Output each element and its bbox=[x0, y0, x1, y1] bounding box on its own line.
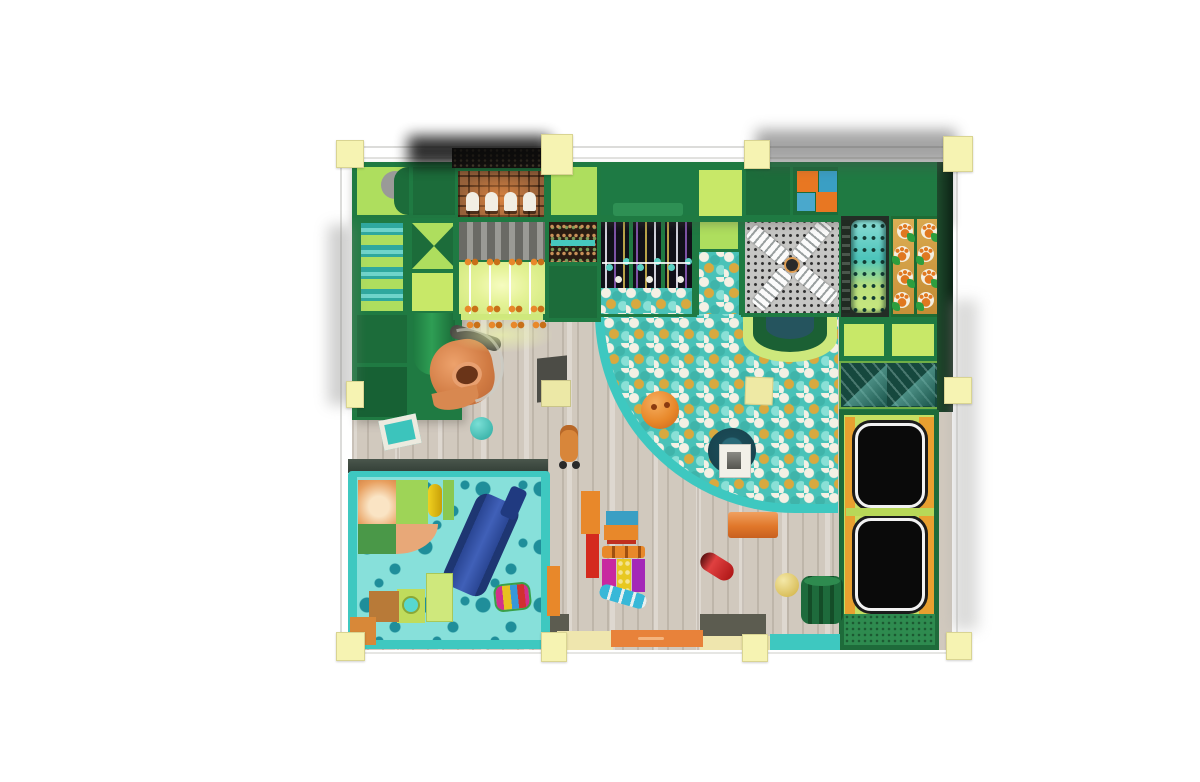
dark-wedge bbox=[394, 167, 409, 215]
soft-block-purple bbox=[632, 559, 645, 592]
bell-pair bbox=[530, 258, 545, 266]
leaf-accent bbox=[892, 256, 900, 265]
bell-pair bbox=[464, 258, 479, 266]
perforated-cylinder bbox=[851, 220, 886, 313]
left-cell-panel bbox=[412, 273, 456, 311]
hanging-string bbox=[685, 220, 687, 288]
floor-bells bbox=[466, 321, 552, 330]
hanging-ball bbox=[646, 276, 653, 283]
structure-column bbox=[742, 634, 768, 662]
harp-curtain bbox=[459, 222, 545, 260]
shadow-smudge bbox=[952, 300, 978, 630]
midcol-panel bbox=[549, 266, 597, 318]
harp-bells-bottom bbox=[464, 305, 544, 313]
hanging-string bbox=[636, 220, 638, 288]
slide-dome-core bbox=[766, 315, 814, 339]
hanging-strings bbox=[600, 220, 692, 290]
toddler-outer-pad bbox=[547, 566, 560, 616]
structure-column bbox=[336, 140, 364, 168]
shadow-smudge bbox=[408, 136, 550, 166]
bell-pair bbox=[508, 258, 523, 266]
harp-bells-top bbox=[464, 258, 544, 266]
green-stool-top bbox=[804, 576, 840, 586]
soft-block-bar-row bbox=[602, 546, 645, 558]
cylinder-ladder bbox=[842, 220, 850, 313]
pit-white-box-art bbox=[727, 452, 741, 469]
right-edge-wall bbox=[937, 162, 953, 412]
brick-arch bbox=[466, 192, 479, 211]
left-cell-panel bbox=[357, 315, 407, 363]
scooter-wheel bbox=[559, 461, 567, 469]
soft-block-orange bbox=[581, 491, 600, 534]
bell-pair bbox=[510, 321, 525, 329]
bell-pair bbox=[508, 305, 523, 313]
trampoline-pad-left bbox=[845, 417, 855, 641]
hanging-string bbox=[667, 220, 669, 288]
hanging-panel-bar bbox=[602, 262, 690, 264]
bell-pair bbox=[486, 258, 501, 266]
storage-box-top bbox=[541, 380, 571, 407]
trampoline-bed bbox=[855, 423, 925, 508]
top-cell-panel bbox=[699, 170, 742, 216]
bell-pair bbox=[488, 321, 503, 329]
pit-orange-ball bbox=[641, 391, 679, 429]
pit-orange-ball-dot bbox=[664, 402, 670, 408]
roller-ramp bbox=[357, 223, 407, 311]
hanging-ball bbox=[637, 264, 644, 271]
toddler-green-column bbox=[443, 480, 454, 520]
leaf-accent bbox=[907, 279, 915, 288]
bell-pair bbox=[532, 321, 547, 329]
bead-shelf-teal-bar bbox=[551, 240, 595, 246]
teal-ball bbox=[470, 417, 493, 440]
structure-column bbox=[944, 377, 972, 404]
brick-arch bbox=[523, 192, 536, 211]
structure-column bbox=[946, 632, 972, 660]
toddler-green-wedge bbox=[358, 524, 396, 554]
color-block-lightblue bbox=[797, 193, 815, 211]
structure-column bbox=[541, 134, 573, 175]
brick-arches bbox=[466, 192, 536, 214]
playground-floorplan bbox=[0, 0, 1200, 782]
hanging-ball bbox=[668, 264, 675, 271]
toddler-lime-box bbox=[426, 573, 453, 622]
hanging-string bbox=[605, 220, 607, 288]
soft-block-red-edge bbox=[607, 540, 636, 544]
structure-column bbox=[541, 632, 567, 662]
hanging-ball bbox=[615, 276, 622, 283]
trampoline-bed bbox=[855, 518, 925, 611]
top-cell-panel bbox=[413, 167, 457, 215]
grid-line-bottom bbox=[338, 652, 962, 654]
soft-block-red bbox=[586, 534, 599, 578]
leaf-accent bbox=[916, 302, 924, 311]
striped-drum bbox=[493, 581, 533, 613]
ride-on-scooter bbox=[560, 430, 578, 462]
trampoline-bottom-step bbox=[844, 614, 935, 645]
entrance-mat-stripe bbox=[638, 637, 664, 640]
structure-column bbox=[744, 140, 770, 169]
windmill-hub bbox=[786, 259, 798, 271]
hanging-ball bbox=[677, 276, 684, 283]
hanging-string bbox=[654, 220, 656, 288]
toddler-yellow-cylinder bbox=[428, 484, 442, 517]
right-cell-panel bbox=[841, 321, 887, 359]
orange-bench bbox=[728, 512, 778, 538]
ball-strip-under-panels bbox=[601, 288, 692, 314]
color-block-orange bbox=[797, 171, 818, 192]
bell-pair bbox=[530, 305, 545, 313]
hanging-string bbox=[623, 220, 625, 288]
green-bar-cell bbox=[697, 218, 741, 252]
leaf-accent bbox=[916, 256, 924, 265]
brick-arch bbox=[504, 192, 517, 211]
paw-strip-1 bbox=[893, 219, 914, 314]
top-cell-panel bbox=[746, 167, 790, 215]
brick-arch bbox=[485, 192, 498, 211]
leaf-accent bbox=[907, 233, 915, 242]
trampoline-mid-band bbox=[846, 508, 934, 516]
bell-pair bbox=[486, 305, 501, 313]
soft-block-blue bbox=[606, 511, 638, 525]
color-block-blue bbox=[819, 171, 837, 192]
leaf-accent bbox=[892, 302, 900, 311]
top-cell-lip bbox=[613, 203, 683, 216]
structure-column bbox=[943, 136, 973, 172]
toddler-hole bbox=[402, 596, 420, 614]
hanging-ball bbox=[606, 264, 613, 271]
bottom-teal-wall bbox=[770, 634, 840, 650]
right-cell-panel bbox=[889, 321, 937, 359]
scooter-wheel bbox=[572, 461, 580, 469]
left-cell-panel bbox=[357, 367, 407, 417]
yellow-ball bbox=[775, 573, 799, 597]
pit-orange-ball-dot bbox=[651, 404, 657, 410]
structure-column bbox=[346, 381, 364, 408]
paw-strip-2 bbox=[917, 219, 938, 314]
bell-pair bbox=[466, 321, 481, 329]
soft-block-orange bbox=[604, 525, 638, 540]
ball-strip-beside-panels bbox=[699, 252, 739, 314]
pit-yellow-platform bbox=[745, 377, 774, 406]
bell-pair bbox=[464, 305, 479, 313]
shadow-smudge bbox=[756, 130, 956, 166]
color-block-orange bbox=[816, 192, 837, 212]
toddler-green-block bbox=[396, 480, 428, 524]
toddler-block-glow bbox=[358, 480, 396, 524]
shadow-smudge bbox=[328, 225, 354, 405]
structure-column bbox=[336, 632, 365, 661]
